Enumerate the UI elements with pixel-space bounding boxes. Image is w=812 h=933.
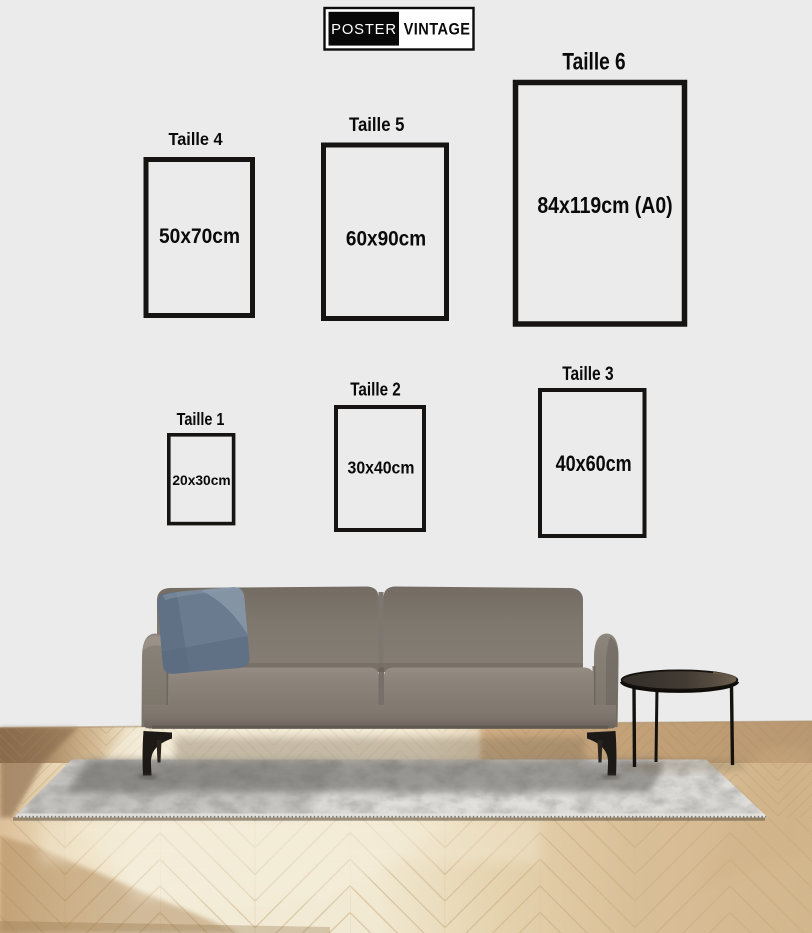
svg-text:40x60cm: 40x60cm — [556, 452, 632, 476]
svg-text:Taille 2: Taille 2 — [350, 379, 401, 400]
svg-text:Taille 4: Taille 4 — [169, 129, 224, 149]
svg-text:Taille 3: Taille 3 — [562, 363, 614, 385]
svg-text:50x70cm: 50x70cm — [159, 225, 240, 248]
svg-text:30x40cm: 30x40cm — [348, 457, 415, 477]
svg-text:VINTAGE: VINTAGE — [404, 21, 471, 39]
svg-text:84x119cm (A0): 84x119cm (A0) — [537, 193, 672, 219]
svg-text:Taille 6: Taille 6 — [562, 47, 625, 75]
svg-text:Taille 1: Taille 1 — [177, 410, 225, 430]
svg-text:POSTER: POSTER — [331, 22, 397, 38]
svg-text:60x90cm: 60x90cm — [346, 228, 426, 251]
svg-text:Taille 5: Taille 5 — [349, 113, 404, 136]
svg-text:20x30cm: 20x30cm — [172, 473, 230, 488]
